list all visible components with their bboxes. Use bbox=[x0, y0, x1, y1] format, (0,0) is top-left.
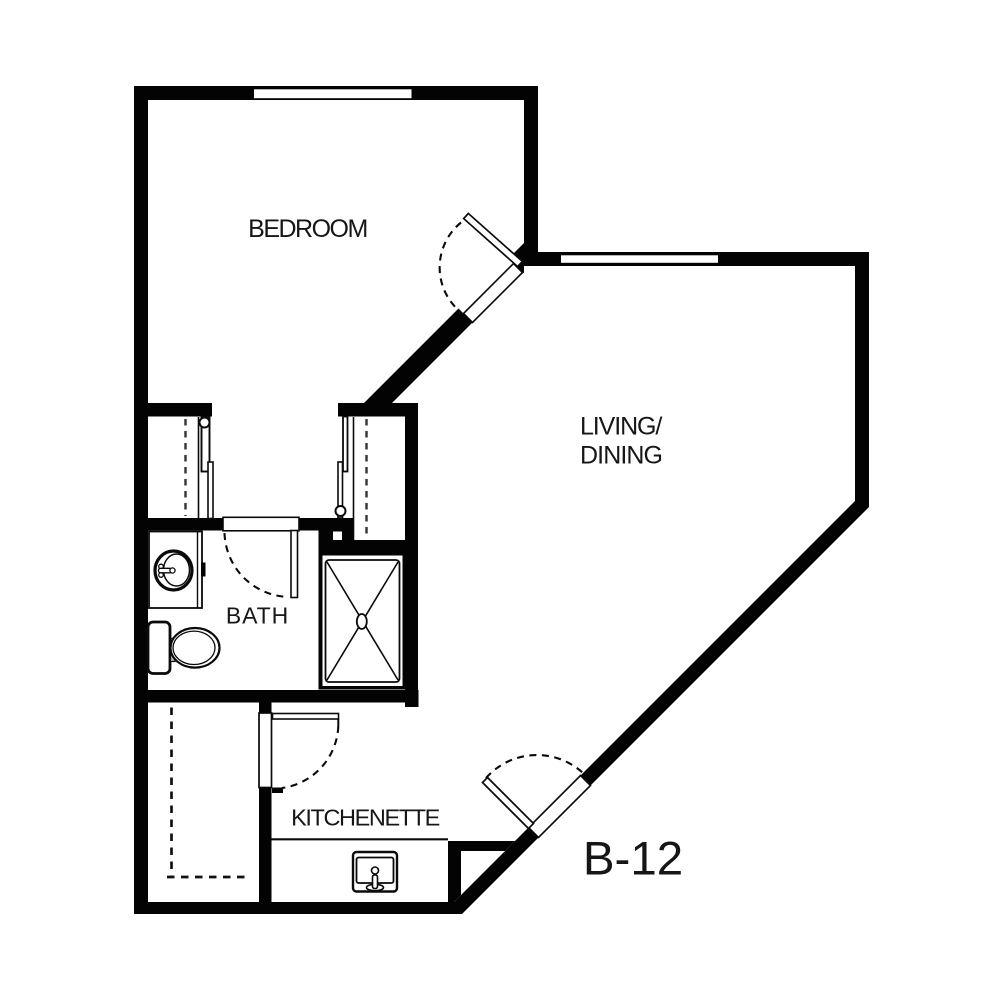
svg-text:BEDROOM: BEDROOM bbox=[248, 215, 367, 243]
svg-text:LIVING/: LIVING/ bbox=[580, 413, 662, 441]
svg-text:B-12: B-12 bbox=[583, 833, 683, 886]
svg-text:KITCHENETTE: KITCHENETTE bbox=[291, 805, 440, 831]
svg-text:BATH: BATH bbox=[226, 603, 289, 629]
svg-text:DINING: DINING bbox=[580, 442, 662, 470]
